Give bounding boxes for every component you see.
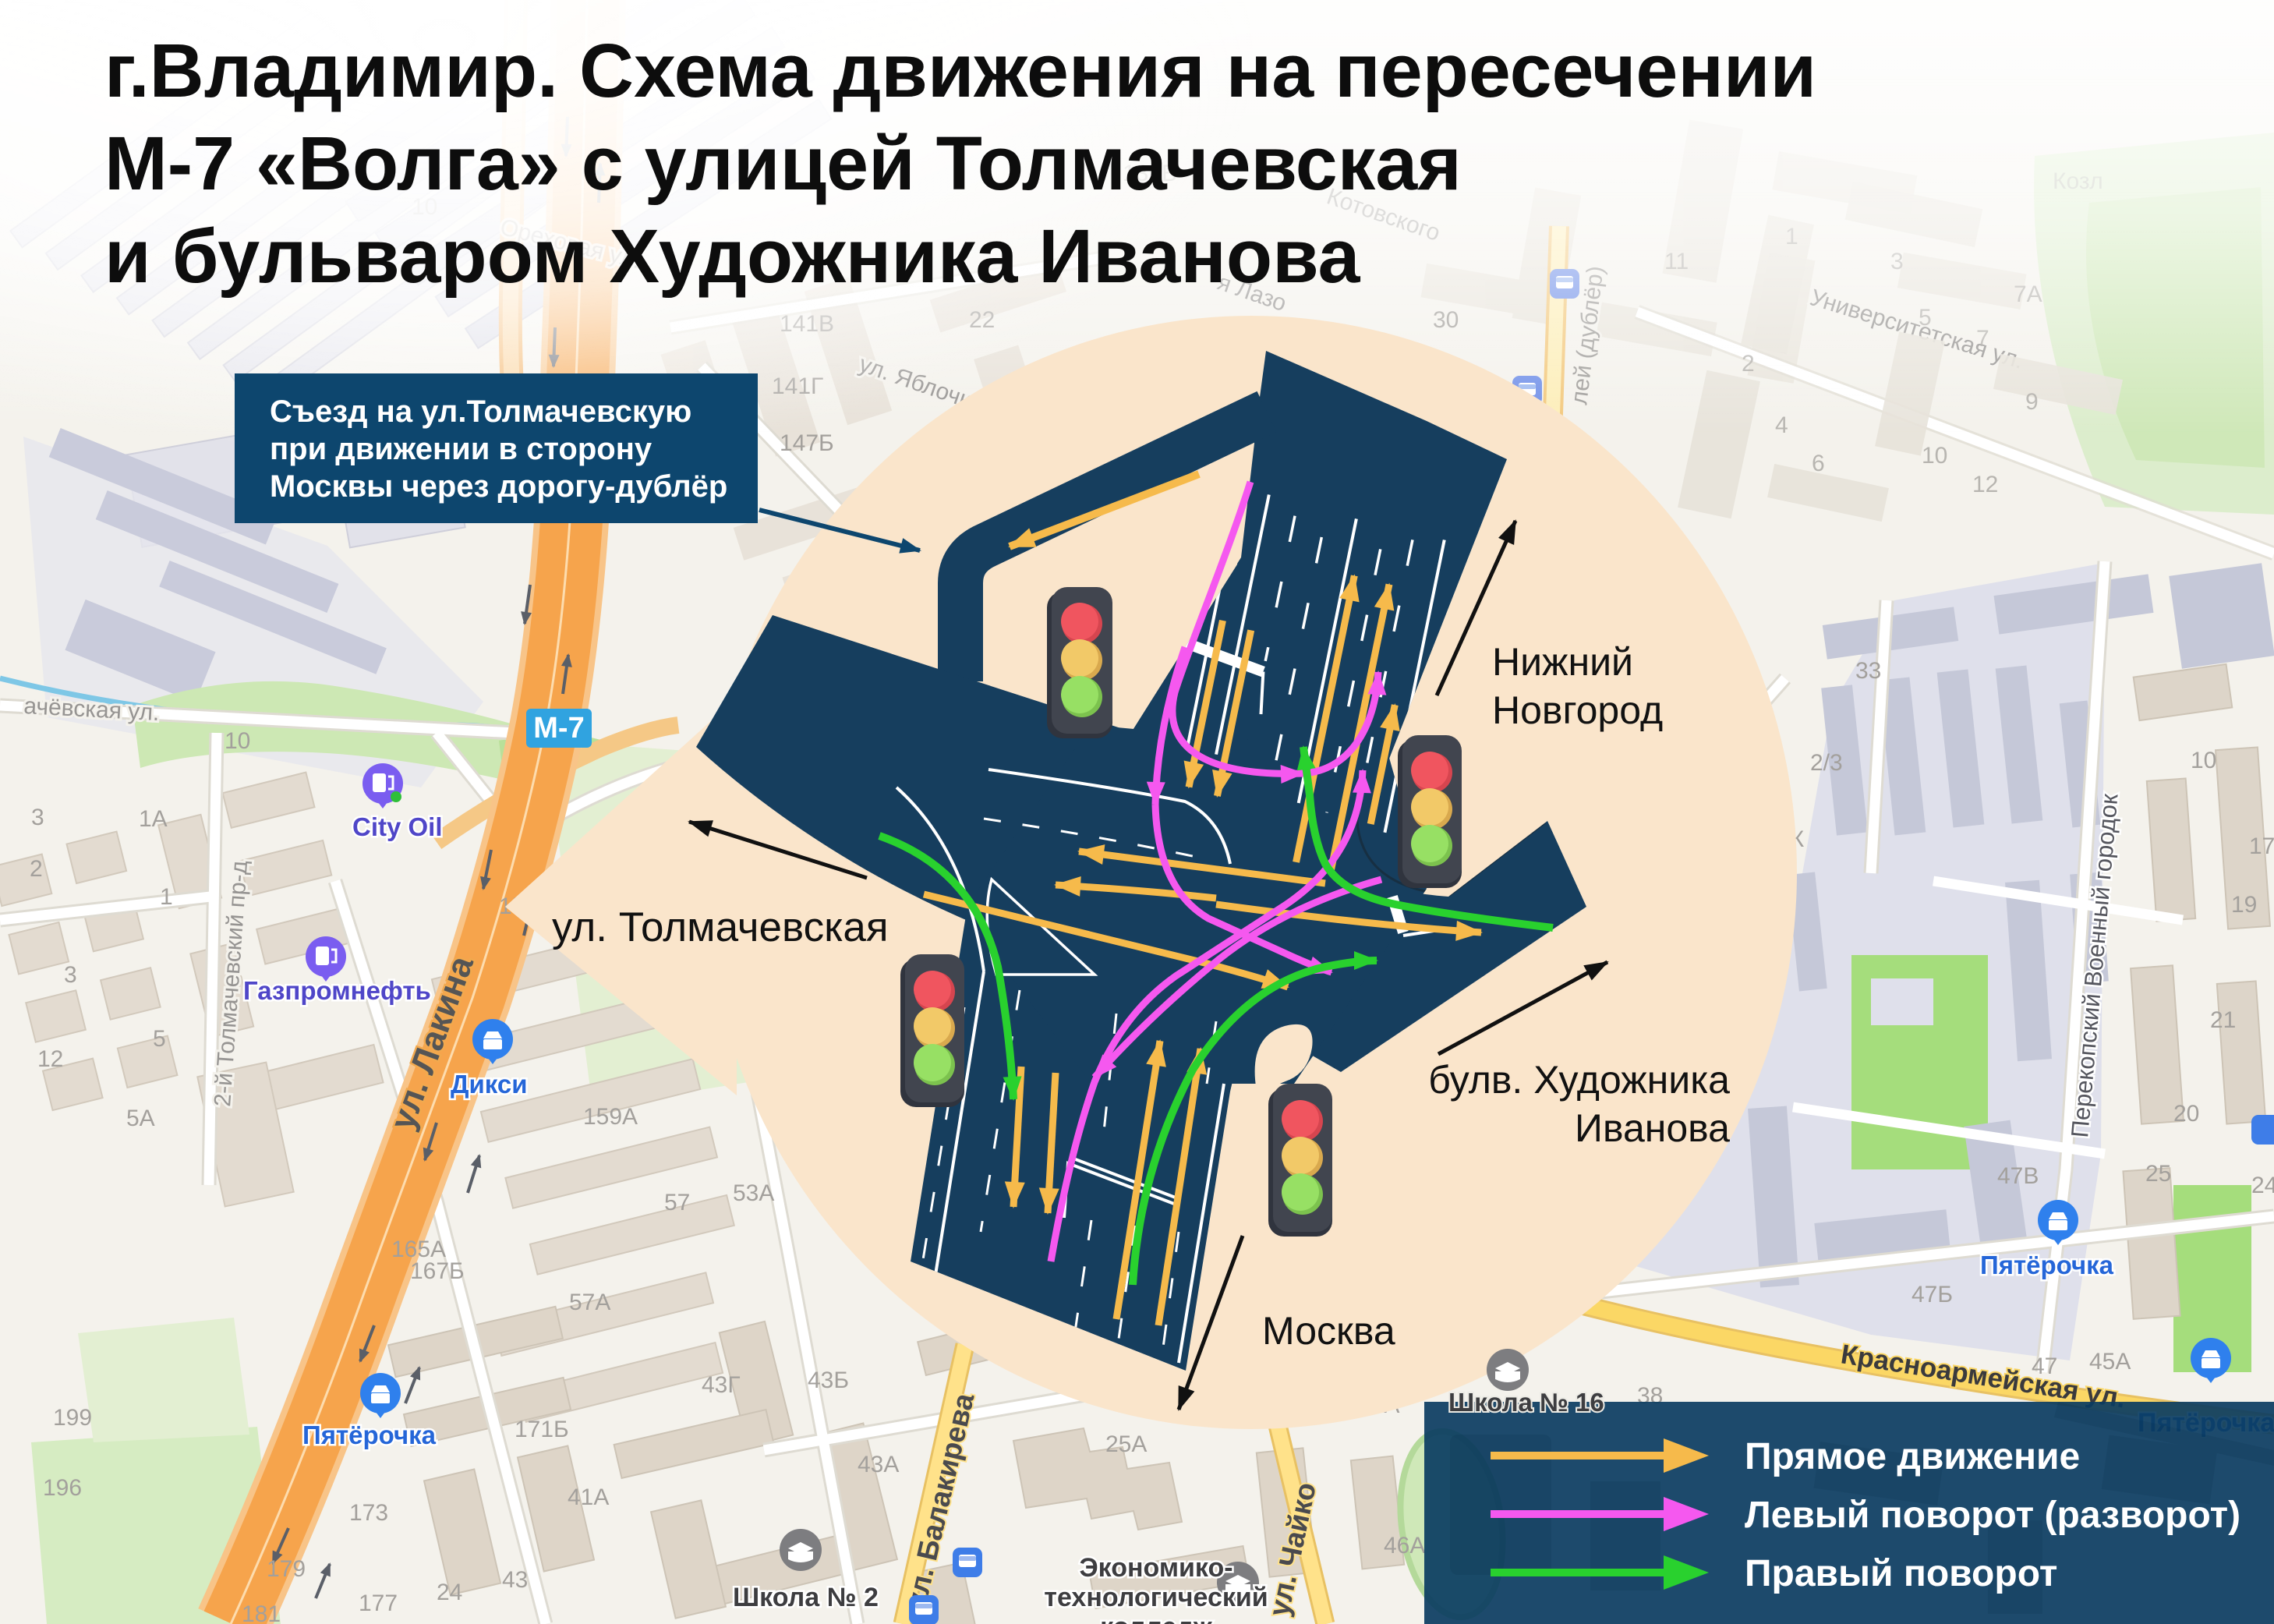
svg-text:19: 19 — [2231, 892, 2257, 918]
svg-text:5: 5 — [153, 1026, 166, 1052]
svg-text:при движении в сторону: при движении в сторону — [270, 432, 652, 466]
svg-text:3: 3 — [31, 805, 44, 830]
svg-text:47: 47 — [2032, 1353, 2057, 1379]
svg-text:17: 17 — [2249, 833, 2274, 859]
svg-text:Дикси: Дикси — [451, 1070, 528, 1099]
svg-text:21: 21 — [2210, 1007, 2236, 1033]
svg-text:Газпромнефть: Газпромнефть — [243, 976, 431, 1005]
svg-text:City Oil: City Oil — [352, 812, 443, 841]
svg-text:Новгород: Новгород — [1492, 688, 1663, 732]
svg-text:41А: 41А — [568, 1484, 609, 1510]
svg-text:171Б: 171Б — [515, 1417, 569, 1442]
svg-text:Левый поворот (разворот): Левый поворот (разворот) — [1745, 1495, 2240, 1536]
svg-text:Москва: Москва — [1262, 1309, 1395, 1353]
svg-text:24: 24 — [2251, 1173, 2274, 1198]
svg-text:179: 179 — [267, 1556, 306, 1582]
svg-text:Москвы через дорогу-дублёр: Москвы через дорогу-дублёр — [270, 469, 727, 504]
svg-text:12: 12 — [37, 1046, 63, 1072]
svg-text:булв. Художника: булв. Художника — [1428, 1058, 1730, 1102]
svg-text:43Б: 43Б — [808, 1367, 849, 1393]
svg-text:2: 2 — [30, 856, 43, 882]
svg-text:57: 57 — [664, 1190, 690, 1215]
svg-text:Школа № 2: Школа № 2 — [733, 1583, 879, 1612]
svg-text:6: 6 — [1812, 451, 1825, 476]
svg-text:2/3: 2/3 — [1810, 750, 1843, 776]
svg-text:181: 181 — [242, 1601, 281, 1624]
svg-text:53А: 53А — [733, 1180, 774, 1206]
svg-text:5А: 5А — [126, 1106, 155, 1131]
svg-text:3: 3 — [64, 962, 77, 988]
svg-text:43Г: 43Г — [702, 1372, 741, 1398]
svg-text:43: 43 — [502, 1567, 528, 1593]
svg-text:33: 33 — [1855, 658, 1881, 684]
svg-text:Нижний: Нижний — [1492, 640, 1633, 684]
svg-text:Прямое движение: Прямое движение — [1745, 1436, 2080, 1477]
svg-text:10: 10 — [2191, 748, 2216, 773]
svg-text:24: 24 — [437, 1580, 462, 1605]
svg-text:47Б: 47Б — [1912, 1282, 1953, 1307]
svg-text:и бульваром Художника Иванова: и бульваром Художника Иванова — [104, 214, 1360, 299]
svg-text:ул. Толмачевская: ул. Толмачевская — [552, 904, 889, 950]
svg-text:колледж: колледж — [1100, 1612, 1213, 1624]
svg-text:167Б: 167Б — [410, 1258, 465, 1284]
svg-text:46А: 46А — [1384, 1533, 1425, 1559]
svg-text:57А: 57А — [569, 1290, 610, 1315]
svg-text:Съезд на ул.Толмачевскую: Съезд на ул.Толмачевскую — [270, 395, 691, 429]
svg-text:Экономико-: Экономико- — [1079, 1553, 1232, 1583]
svg-text:М-7 «Волга» с улицей Толмачевс: М-7 «Волга» с улицей Толмачевская — [104, 121, 1462, 206]
svg-text:196: 196 — [43, 1475, 82, 1501]
svg-text:Пятёрочка: Пятёрочка — [302, 1421, 437, 1449]
svg-text:12: 12 — [1972, 472, 1998, 497]
svg-text:45А: 45А — [2089, 1349, 2131, 1375]
svg-text:43А: 43А — [858, 1452, 899, 1477]
svg-text:10: 10 — [1922, 443, 1947, 469]
svg-text:173: 173 — [349, 1500, 388, 1526]
svg-text:25: 25 — [2145, 1161, 2171, 1187]
svg-text:159А: 159А — [583, 1104, 638, 1130]
svg-text:М-7: М-7 — [533, 712, 584, 745]
svg-text:Иванова: Иванова — [1575, 1106, 1730, 1150]
svg-text:177: 177 — [359, 1590, 398, 1616]
svg-text:1: 1 — [160, 884, 173, 910]
svg-text:1А: 1А — [139, 806, 168, 832]
svg-text:199: 199 — [53, 1405, 92, 1431]
svg-text:Школа № 16: Школа № 16 — [1448, 1388, 1604, 1417]
svg-text:г.Владимир. Схема движения на: г.Владимир. Схема движения на пересечени… — [104, 28, 1816, 113]
svg-text:Пятёрочка: Пятёрочка — [1980, 1251, 2114, 1279]
svg-text:20: 20 — [2173, 1101, 2199, 1127]
svg-text:47В: 47В — [1997, 1163, 2039, 1189]
svg-text:технологический: технологический — [1044, 1583, 1268, 1612]
svg-text:Правый поворот: Правый поворот — [1745, 1553, 2057, 1594]
svg-text:25А: 25А — [1105, 1431, 1147, 1457]
